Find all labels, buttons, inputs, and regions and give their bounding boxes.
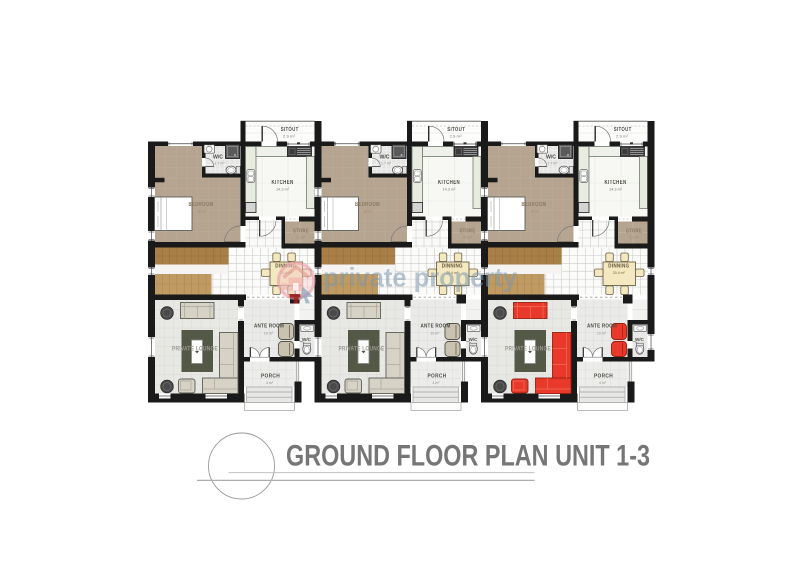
svg-text:DINNING: DINNING (608, 264, 629, 270)
svg-text:4 m²: 4 m² (266, 381, 274, 385)
svg-text:PORCH: PORCH (261, 374, 280, 380)
svg-text:PORCH: PORCH (594, 374, 613, 380)
svg-text:STORE: STORE (460, 229, 476, 235)
svg-text:GROUND FLOOR PLAN UNIT 1-3: GROUND FLOOR PLAN UNIT 1-3 (286, 440, 650, 473)
svg-text:SITOUT: SITOUT (447, 127, 465, 133)
svg-text:10 m²: 10 m² (597, 332, 607, 336)
svg-text:2.1 m²: 2.1 m² (630, 236, 640, 240)
svg-text:PRIVATE LOUNGE: PRIVATE LOUNGE (505, 347, 551, 353)
svg-text:BEDROOM: BEDROOM (355, 202, 380, 208)
svg-text:1.7 m²: 1.7 m² (381, 162, 392, 166)
svg-text:W/C: W/C (213, 155, 223, 161)
svg-text:14.3 m²: 14.3 m² (276, 187, 290, 192)
svg-text:KITCHEN: KITCHEN (438, 180, 460, 186)
svg-text:ANTE ROOM: ANTE ROOM (254, 324, 284, 330)
svg-text:W/C: W/C (469, 337, 479, 342)
svg-text:2.9 m²: 2.9 m² (450, 134, 463, 139)
svg-text:10 m²: 10 m² (430, 332, 440, 336)
svg-text:PORCH: PORCH (428, 374, 447, 380)
svg-text:PRIVATE LOUNGE: PRIVATE LOUNGE (172, 347, 218, 353)
svg-text:SITOUT: SITOUT (614, 127, 632, 133)
svg-text:W/C: W/C (635, 337, 645, 342)
svg-text:W/C: W/C (302, 337, 312, 342)
svg-text:16 m²: 16 m² (530, 209, 540, 214)
svg-text:16 m²: 16 m² (197, 209, 207, 214)
svg-text:private property: private property (323, 263, 517, 293)
svg-text:PRIVATE LOUNGE: PRIVATE LOUNGE (339, 347, 385, 353)
svg-text:2.1 m²: 2.1 m² (297, 236, 307, 240)
svg-text:2.9 m²: 2.9 m² (283, 134, 296, 139)
svg-text:1.7 m²: 1.7 m² (548, 162, 559, 166)
svg-text:BEDROOM: BEDROOM (189, 202, 214, 208)
svg-text:BEDROOM: BEDROOM (522, 202, 547, 208)
svg-text:ANTE ROOM: ANTE ROOM (587, 324, 617, 330)
svg-text:STORE: STORE (626, 229, 642, 235)
svg-text:2.9 m²: 2.9 m² (616, 134, 629, 139)
svg-text:16 m²: 16 m² (364, 209, 374, 214)
svg-text:14.3 m²: 14.3 m² (609, 187, 623, 192)
svg-text:4 m²: 4 m² (599, 381, 607, 385)
svg-text:W/C: W/C (546, 155, 556, 161)
svg-text:ANTE ROOM: ANTE ROOM (421, 324, 451, 330)
svg-text:W/C: W/C (380, 155, 390, 161)
svg-text:10 m²: 10 m² (264, 332, 274, 336)
svg-text:KITCHEN: KITCHEN (272, 180, 294, 186)
svg-text:SITOUT: SITOUT (281, 127, 299, 133)
svg-text:2.1 m²: 2.1 m² (463, 236, 473, 240)
svg-text:14.3 m²: 14.3 m² (443, 187, 457, 192)
svg-text:KITCHEN: KITCHEN (605, 180, 627, 186)
svg-text:1.7 m²: 1.7 m² (215, 162, 226, 166)
svg-text:20.4 m²: 20.4 m² (613, 270, 626, 275)
svg-text:4 m²: 4 m² (433, 381, 441, 385)
svg-text:STORE: STORE (293, 229, 309, 235)
